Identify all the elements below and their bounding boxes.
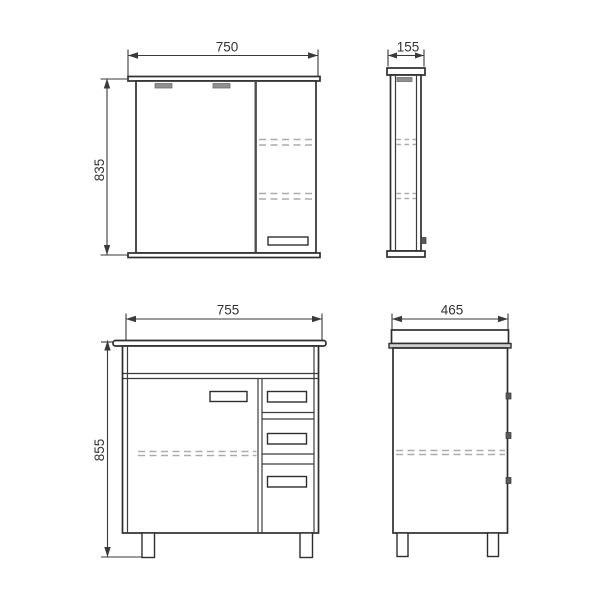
drawer-1-handle <box>268 392 307 403</box>
mirror-depth-label: 155 <box>397 40 420 55</box>
arrow-left-icon <box>388 53 397 59</box>
mirror-bottom-shelf <box>128 253 320 258</box>
vanity-side-cabinet <box>389 330 511 557</box>
arrow-down-icon <box>104 547 110 557</box>
furniture-drawing: 750 835 <box>0 0 600 600</box>
vanity-leg-right <box>300 533 313 558</box>
mirror-height-label: 835 <box>92 159 107 182</box>
vanity-leg-left <box>142 533 155 558</box>
arrow-up-icon <box>104 79 110 89</box>
vanity-side-view: 465 <box>389 303 511 557</box>
mirror-side-cabinet <box>387 68 426 257</box>
arrow-down-icon <box>104 245 110 255</box>
mirror-body <box>136 81 316 253</box>
mirror-side-top-cap <box>387 68 425 75</box>
door-handle <box>210 392 247 402</box>
mirror-side-view: 155 <box>387 40 426 258</box>
drawer-knob-icon <box>506 433 511 439</box>
vanity-front-cabinet <box>113 341 326 558</box>
lamp-right-icon <box>213 84 230 89</box>
vanity-side-leg-left <box>397 533 408 557</box>
vanity-height-label: 855 <box>92 439 107 462</box>
vanity-depth-label: 465 <box>441 303 464 318</box>
vanity-front-view: 755 855 <box>92 303 326 558</box>
vanity-side-body <box>393 348 508 533</box>
arrow-left-icon <box>126 316 136 322</box>
vanity-width-label: 755 <box>217 303 240 318</box>
drawer-2-handle <box>268 434 307 445</box>
vanity-side-leg-right <box>488 533 499 557</box>
vanity-front-width-dimension: 755 <box>126 303 322 341</box>
arrow-left-icon <box>392 316 402 322</box>
mirror-front-cabinet <box>128 77 320 258</box>
mirror-side-bottom-cap <box>387 251 425 257</box>
arrow-left-icon <box>128 52 138 58</box>
technical-drawing-canvas: 750 835 <box>0 0 600 600</box>
mirror-front-view: 750 835 <box>92 40 320 258</box>
arrow-right-icon <box>498 316 508 322</box>
door-knob-icon <box>421 238 426 244</box>
drawer-3-handle <box>268 477 307 488</box>
mirror-front-width-dimension: 750 <box>128 40 318 77</box>
arrow-right-icon <box>308 52 318 58</box>
drawer-knob-icon <box>506 393 511 399</box>
drawer-knob-icon <box>506 478 511 484</box>
mirror-side-depth-dimension: 155 <box>388 40 424 67</box>
lamp-left-icon <box>155 84 172 89</box>
vanity-side-top-band <box>392 330 509 344</box>
mirror-width-label: 750 <box>216 40 239 55</box>
arrow-right-icon <box>312 316 322 322</box>
switch-box <box>268 237 308 245</box>
mirror-front-height-dimension: 835 <box>92 79 128 256</box>
lamp-profile-icon <box>397 78 412 82</box>
